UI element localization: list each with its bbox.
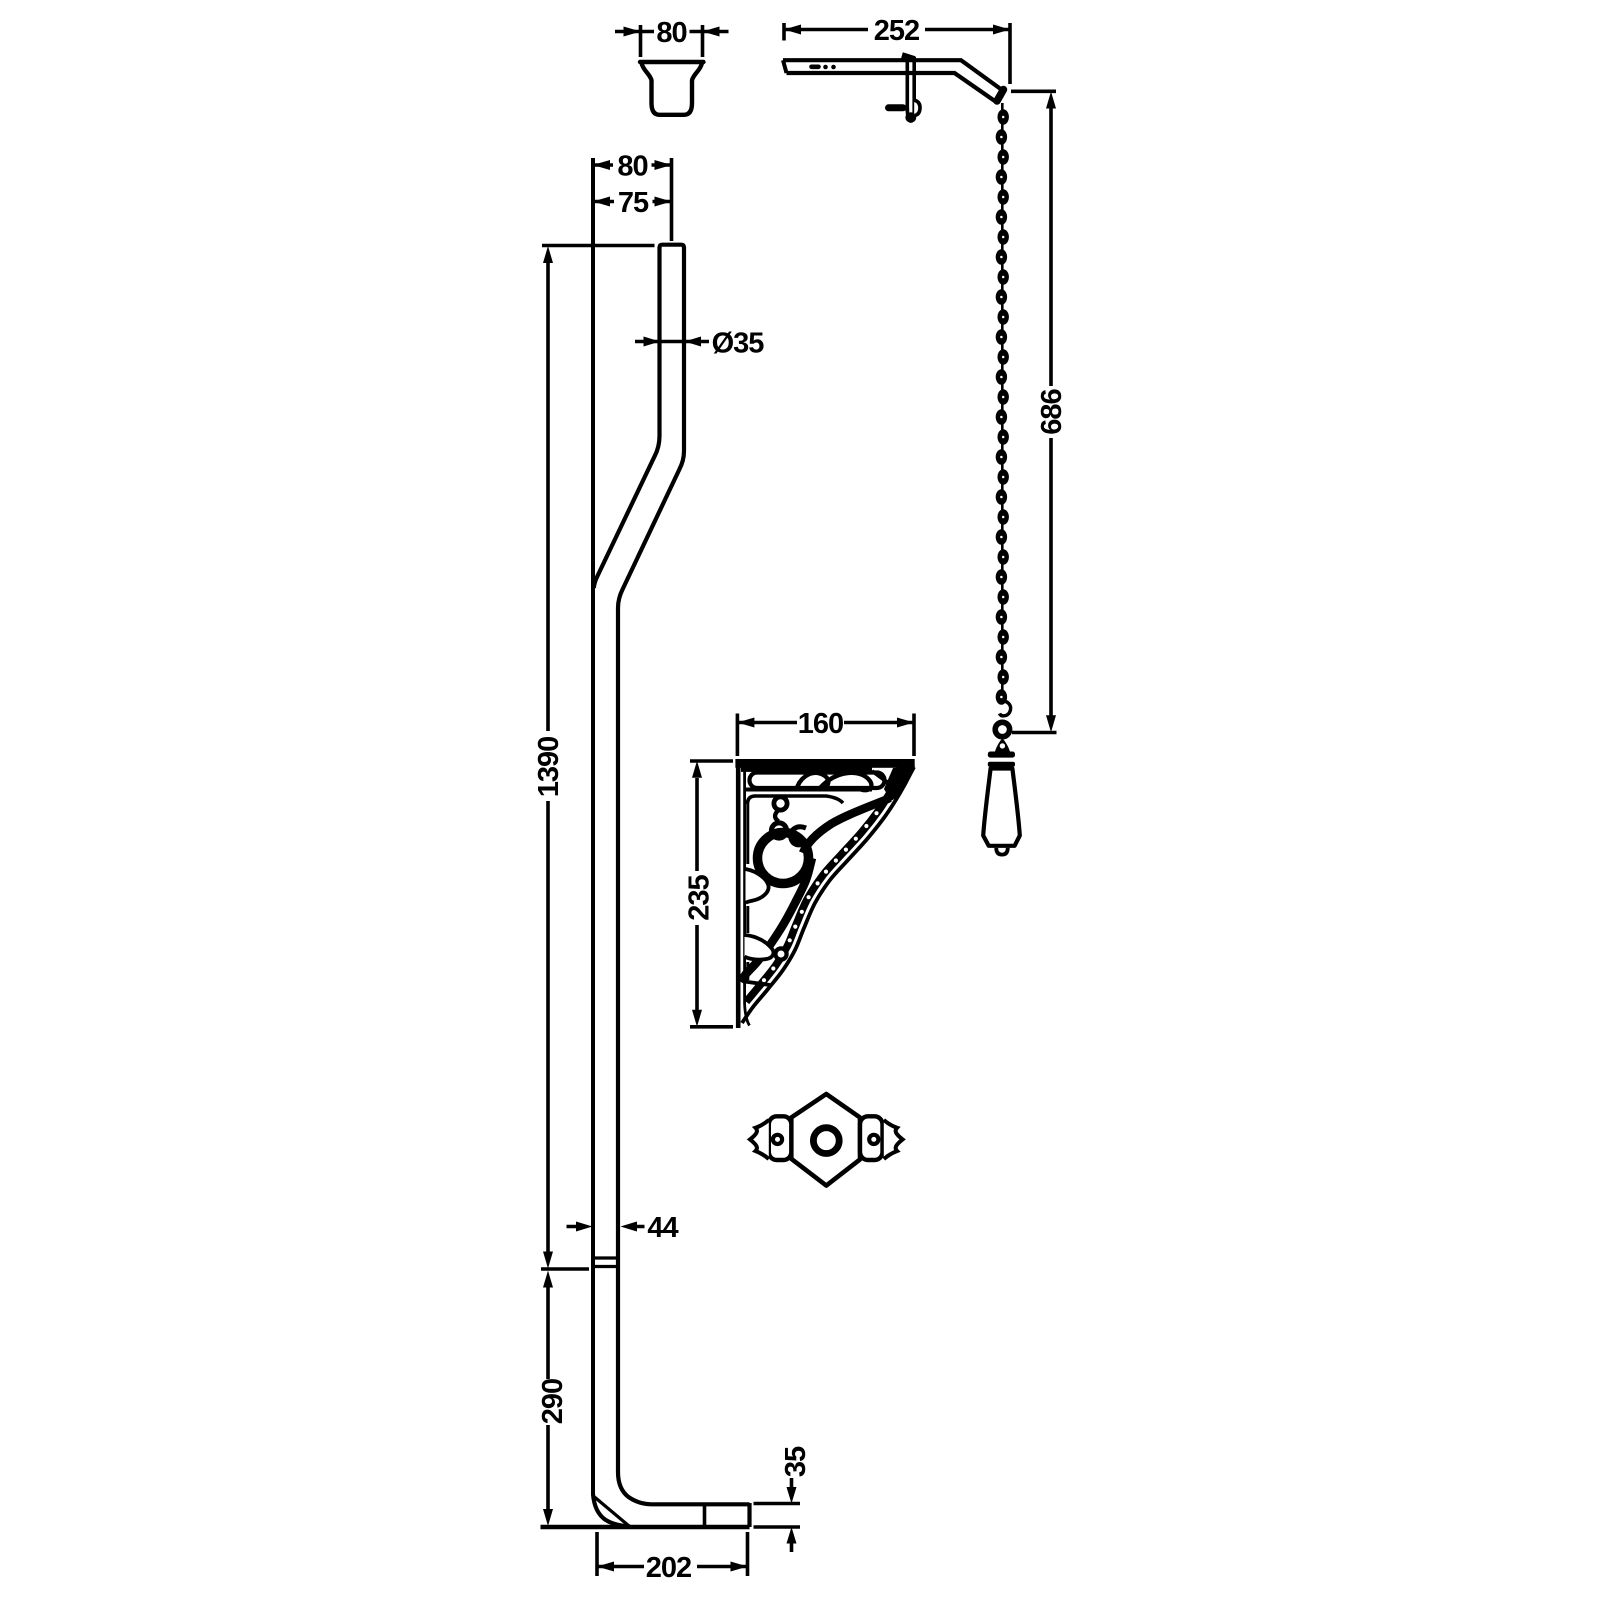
svg-text:235: 235	[684, 874, 716, 920]
svg-text:80: 80	[656, 17, 686, 49]
svg-text:44: 44	[647, 1212, 678, 1244]
svg-text:80: 80	[617, 151, 647, 183]
svg-text:75: 75	[618, 187, 649, 219]
svg-text:35: 35	[780, 1446, 812, 1477]
svg-text:Ø35: Ø35	[712, 328, 765, 360]
svg-text:202: 202	[646, 1552, 691, 1584]
svg-text:686: 686	[1036, 388, 1068, 434]
svg-text:252: 252	[874, 15, 919, 47]
svg-text:290: 290	[537, 1379, 569, 1424]
svg-text:160: 160	[798, 708, 843, 740]
svg-text:1390: 1390	[533, 737, 565, 798]
